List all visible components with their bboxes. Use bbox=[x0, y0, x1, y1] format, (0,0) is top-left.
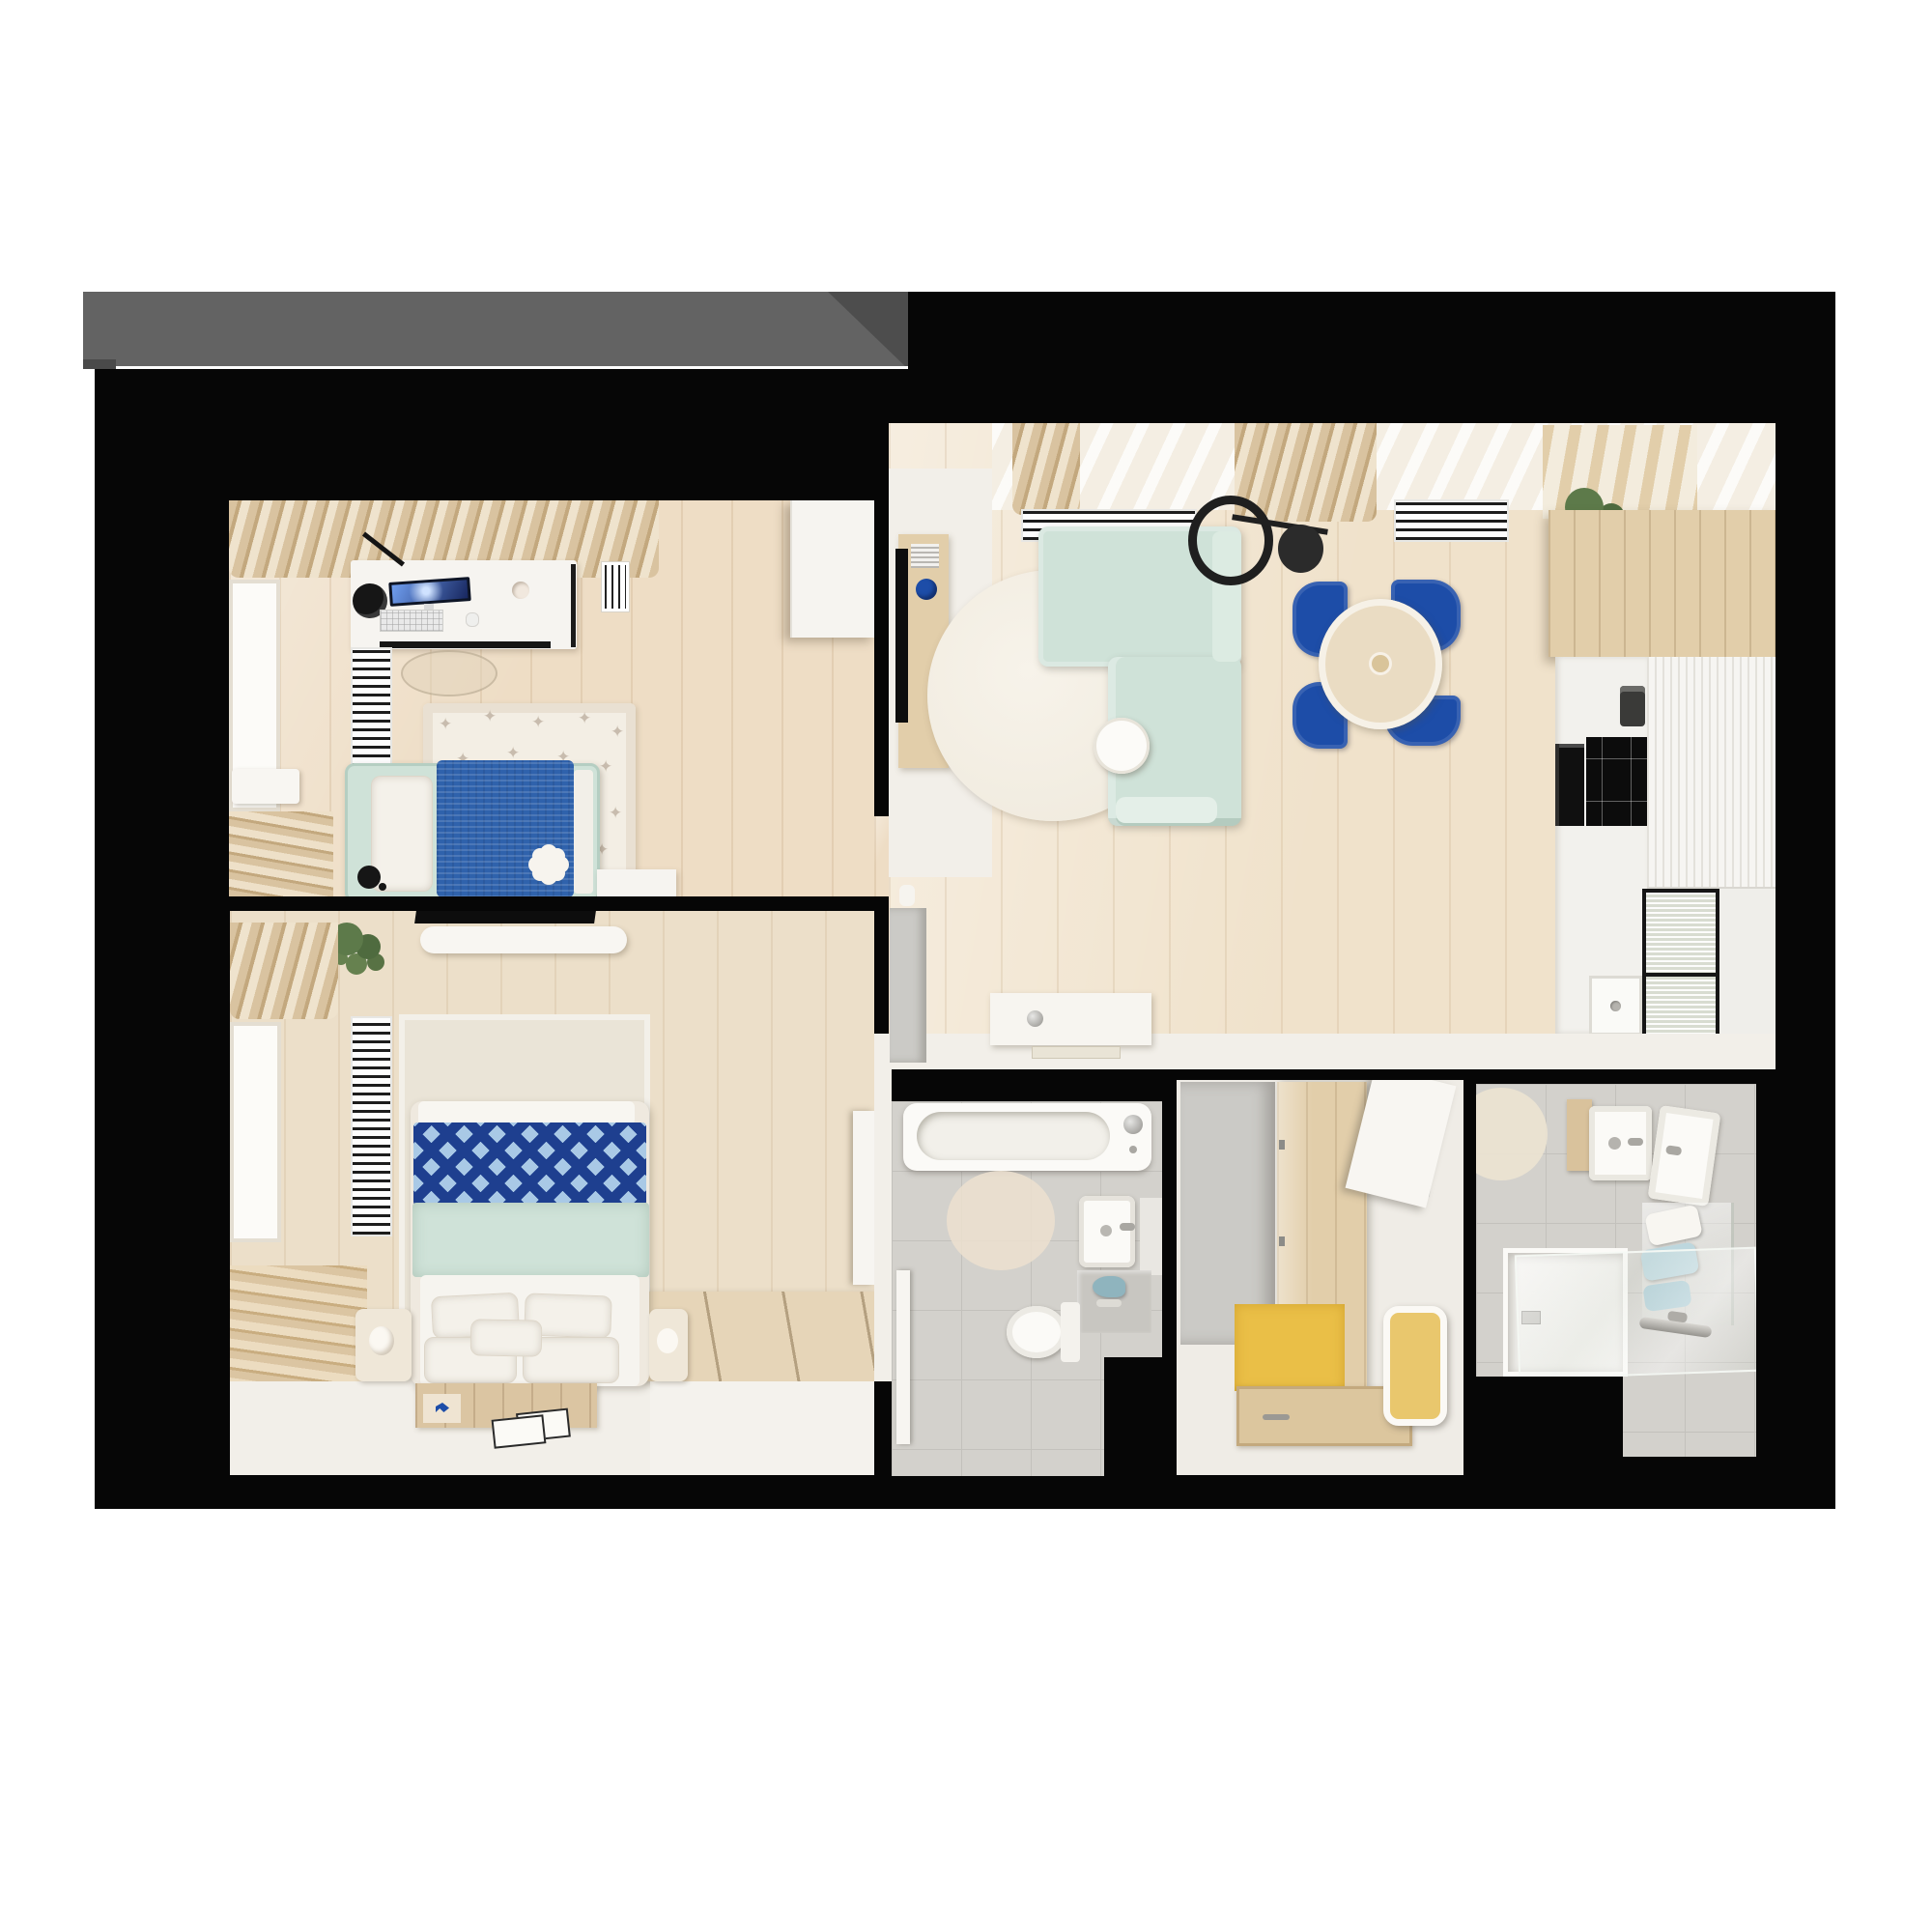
shower-mixer bbox=[1667, 1311, 1688, 1323]
master-bedroom bbox=[230, 911, 874, 1475]
desk-frame-bar bbox=[380, 641, 551, 648]
desk-cup bbox=[512, 582, 529, 599]
dining-table bbox=[1319, 599, 1442, 729]
flower-pouf bbox=[534, 850, 563, 879]
bathroom-1 bbox=[892, 1101, 1162, 1476]
bench-papers bbox=[492, 1414, 547, 1448]
bath2-notch-wall bbox=[1476, 1377, 1623, 1457]
glass-partition-divider bbox=[1646, 973, 1716, 977]
kitchen-upper-wood-box bbox=[1548, 510, 1776, 657]
rug-star-icon: ✦ bbox=[611, 724, 624, 741]
hinge-2 bbox=[1279, 1236, 1285, 1246]
toilet-bowl bbox=[1007, 1306, 1066, 1358]
nightstand-right bbox=[649, 1309, 688, 1381]
desk-chair bbox=[401, 650, 497, 696]
kitchen-counter bbox=[1555, 657, 1647, 1034]
living-room bbox=[889, 423, 1776, 1069]
table-centerpiece bbox=[1372, 655, 1389, 672]
rug-star-icon: ✦ bbox=[599, 759, 612, 776]
kids-wardrobe bbox=[790, 500, 874, 638]
hall-console bbox=[990, 993, 1151, 1045]
kitchen-tall-cabinets bbox=[1647, 657, 1776, 889]
master-bed bbox=[411, 1101, 649, 1386]
bath1-mirror bbox=[1140, 1198, 1162, 1275]
arc-lamp-ring bbox=[1188, 496, 1273, 585]
chevron-blanket bbox=[413, 1122, 646, 1206]
rug-star-icon: ✦ bbox=[609, 806, 622, 822]
hall-tall-cabinet bbox=[890, 908, 926, 1063]
rug-star-icon: ✦ bbox=[483, 709, 497, 725]
bath1-counter bbox=[1077, 1270, 1151, 1333]
bench-box-motif bbox=[436, 1403, 449, 1412]
rug-star-icon: ✦ bbox=[531, 715, 545, 731]
bench-box bbox=[423, 1394, 461, 1423]
corridor-strip bbox=[874, 1034, 892, 1381]
wood-platform-base bbox=[650, 1381, 874, 1475]
hall-cabinet-vase bbox=[899, 885, 915, 906]
kids-bed-lamp bbox=[357, 866, 381, 889]
bath2-sink1-tap bbox=[1628, 1138, 1643, 1146]
hinge-1 bbox=[1279, 1140, 1285, 1150]
bath-faucet bbox=[1123, 1115, 1143, 1134]
bath1-sink bbox=[1079, 1196, 1135, 1267]
towel-white bbox=[1644, 1205, 1703, 1247]
closet-room bbox=[1177, 1080, 1463, 1475]
master-media-shelf bbox=[420, 926, 627, 953]
roof-corner-shade bbox=[828, 292, 908, 369]
soap-dish bbox=[1096, 1299, 1122, 1307]
sofa-end-cushion bbox=[1116, 797, 1217, 823]
coffee-machine bbox=[1620, 686, 1645, 726]
kids-ceiling-vent-1 bbox=[602, 562, 629, 611]
bath2-rug bbox=[1476, 1088, 1548, 1180]
side-table bbox=[1094, 718, 1150, 774]
living-curtain-left bbox=[1012, 423, 1080, 515]
mouse bbox=[466, 612, 479, 627]
nightstand-left-lamp bbox=[369, 1326, 394, 1355]
master-radiator bbox=[351, 1016, 392, 1236]
console-blue-vase bbox=[916, 579, 937, 600]
rug-star-icon: ✦ bbox=[439, 717, 452, 733]
console-tray bbox=[1032, 1046, 1121, 1059]
bath1-door-leaf bbox=[896, 1270, 910, 1444]
master-door-leaf bbox=[853, 1111, 874, 1285]
monitor bbox=[388, 577, 471, 607]
kids-radiator bbox=[351, 647, 392, 777]
bath1-rug bbox=[947, 1171, 1055, 1270]
kids-low-cabinet bbox=[597, 869, 676, 896]
roof-step bbox=[83, 359, 116, 369]
bath2-sink-2 bbox=[1648, 1105, 1721, 1207]
nightstand-left bbox=[355, 1309, 412, 1381]
console-knob bbox=[1027, 1010, 1043, 1027]
hatch-handle bbox=[1263, 1414, 1290, 1420]
bath1-sink-tap bbox=[1120, 1223, 1135, 1231]
mint-throw bbox=[412, 1203, 649, 1277]
master-wall-tv bbox=[414, 911, 596, 923]
floor-plan-canvas: ✦✦✦✦✦✦✦✦✦✦✦✦✦✦✦✦✦✦ bbox=[0, 0, 1932, 1932]
whale-toy bbox=[1093, 1276, 1125, 1297]
kids-desk bbox=[351, 560, 577, 649]
bath2-sink1-drain bbox=[1608, 1137, 1621, 1150]
kids-bed bbox=[345, 763, 600, 896]
kitchen-side-panel bbox=[1719, 889, 1776, 1058]
master-curtains-top bbox=[230, 923, 338, 1019]
shower-glass-screen bbox=[1515, 1247, 1756, 1380]
bathroom-2 bbox=[1476, 1084, 1756, 1457]
kids-bedroom: ✦✦✦✦✦✦✦✦✦✦✦✦✦✦✦✦✦✦ bbox=[229, 500, 874, 896]
arc-lamp-base-disk bbox=[1278, 525, 1323, 573]
oven bbox=[1555, 744, 1584, 826]
console-radio bbox=[911, 544, 939, 568]
keyboard bbox=[380, 610, 443, 632]
master-pillow-5 bbox=[470, 1319, 543, 1356]
bathtub bbox=[903, 1103, 1151, 1171]
bath1-sink-drain bbox=[1100, 1225, 1112, 1236]
bath1-notch-wall bbox=[1104, 1357, 1162, 1476]
kids-wall-shelf bbox=[232, 769, 299, 804]
toilet-tank bbox=[1061, 1302, 1080, 1362]
kitchen-sink bbox=[1589, 976, 1642, 1036]
toilet bbox=[1007, 1302, 1080, 1362]
desk-leg-frame bbox=[571, 564, 576, 647]
nightstand-right-lamp bbox=[657, 1328, 678, 1353]
cooktop bbox=[1586, 737, 1647, 826]
glass-partition bbox=[1642, 889, 1719, 1058]
living-radiator-2 bbox=[1394, 499, 1509, 542]
master-window bbox=[230, 1022, 281, 1242]
bath2-sink-1 bbox=[1589, 1106, 1652, 1180]
leaning-mirror bbox=[1383, 1306, 1447, 1426]
sink-drain bbox=[1610, 1001, 1621, 1011]
bathtub-inner bbox=[917, 1112, 1110, 1160]
kids-sheet-strip bbox=[574, 770, 593, 894]
living-wall-tv bbox=[895, 549, 908, 723]
kids-curtains-bottom bbox=[229, 811, 333, 896]
monitor-screen bbox=[391, 580, 468, 603]
rug-star-icon: ✦ bbox=[578, 711, 591, 727]
yellow-mat bbox=[1235, 1304, 1345, 1391]
bath2-sink2-tap bbox=[1665, 1145, 1682, 1155]
roof-overhang bbox=[83, 292, 908, 369]
